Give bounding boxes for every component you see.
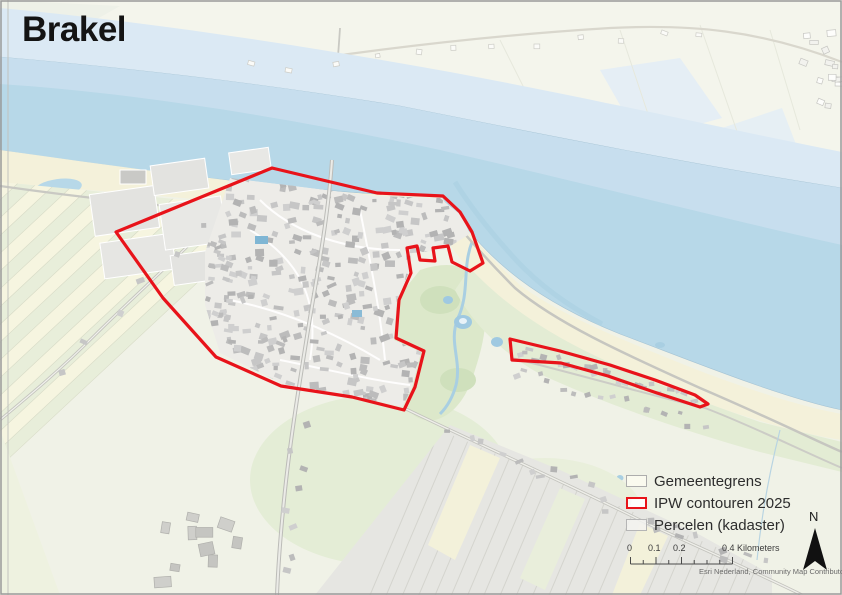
map-window: Brakel Gemeentegrens IPW contouren 2025 … <box>0 0 842 595</box>
base-map[interactable] <box>0 0 842 595</box>
